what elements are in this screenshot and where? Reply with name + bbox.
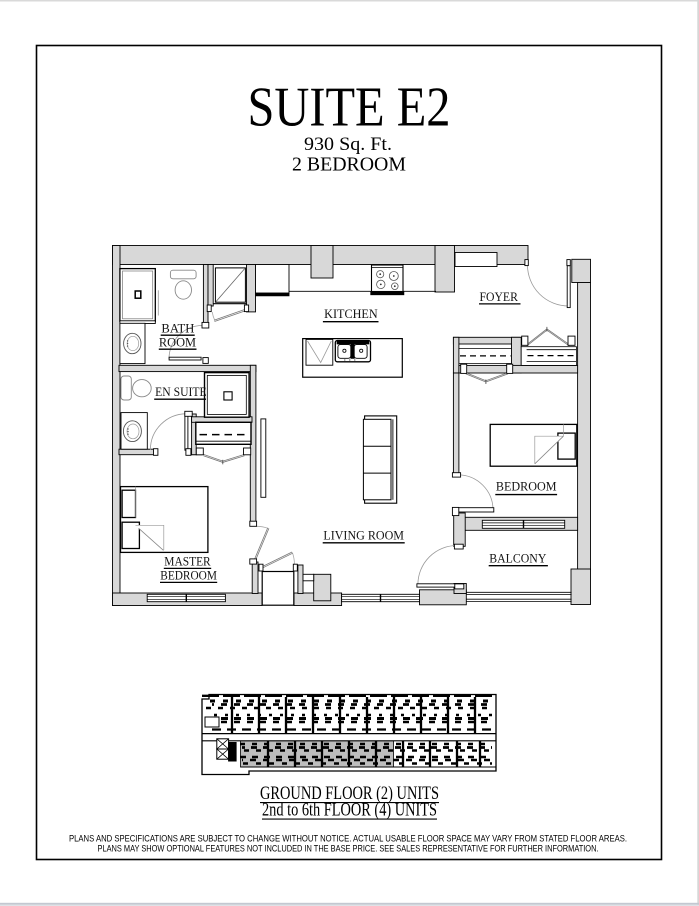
svg-text:LIVING ROOM: LIVING ROOM — [323, 529, 404, 543]
svg-text:EN SUITE: EN SUITE — [155, 385, 207, 399]
svg-text:BEDROOM: BEDROOM — [160, 568, 217, 582]
svg-text:2 BEDROOM: 2 BEDROOM — [292, 155, 406, 176]
svg-text:930 Sq. Ft.: 930 Sq. Ft. — [304, 134, 392, 155]
svg-text:BALCONY: BALCONY — [489, 551, 546, 565]
svg-text:PLANS MAY SHOW OPTIONAL FEATUR: PLANS MAY SHOW OPTIONAL FEATURES NOT INC… — [98, 843, 599, 854]
svg-text:BEDROOM: BEDROOM — [496, 480, 557, 494]
svg-text:2nd to 6th FLOOR (4) UNITS: 2nd to 6th FLOOR (4) UNITS — [262, 800, 437, 821]
svg-text:SUITE E2: SUITE E2 — [248, 76, 451, 138]
svg-text:ROOM: ROOM — [159, 336, 196, 350]
svg-text:KITCHEN: KITCHEN — [324, 307, 378, 321]
svg-text:BATH: BATH — [161, 322, 194, 336]
svg-text:FOYER: FOYER — [479, 290, 518, 304]
svg-text:MASTER: MASTER — [164, 554, 211, 568]
